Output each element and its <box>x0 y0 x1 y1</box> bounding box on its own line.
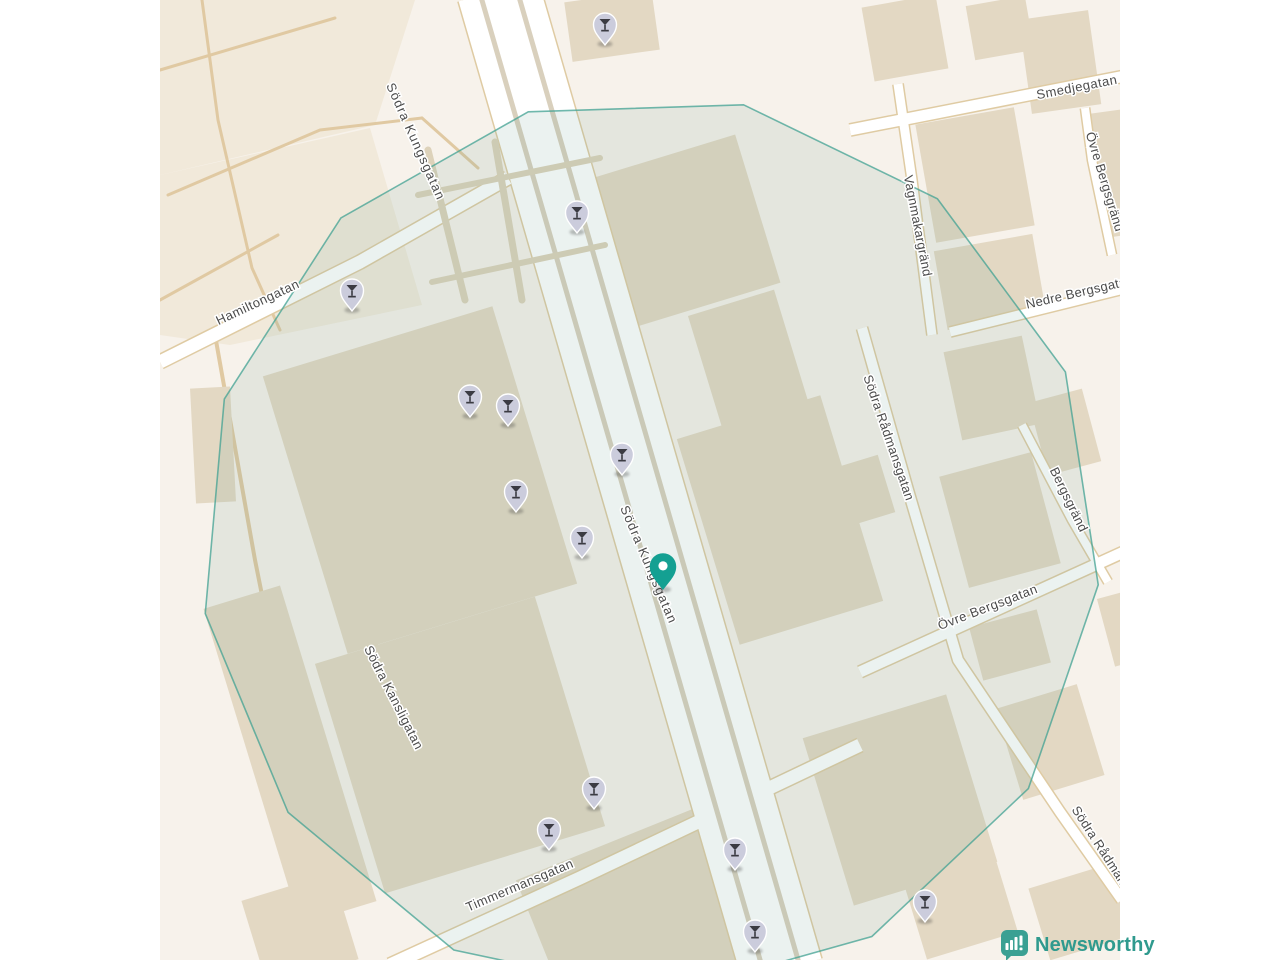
newsworthy-logo-text: Newsworthy <box>1035 934 1155 957</box>
newsworthy-logo-icon <box>1001 930 1028 960</box>
building <box>862 0 949 81</box>
map-canvas[interactable]: Södra KungsgatanHamiltongatanSmedjegatan… <box>160 0 1120 960</box>
screenshot-stage: Södra KungsgatanHamiltongatanSmedjegatan… <box>0 0 1280 960</box>
newsworthy-logo[interactable]: Newsworthy <box>1001 930 1155 960</box>
map-svg[interactable]: Södra KungsgatanHamiltongatanSmedjegatan… <box>160 0 1120 960</box>
